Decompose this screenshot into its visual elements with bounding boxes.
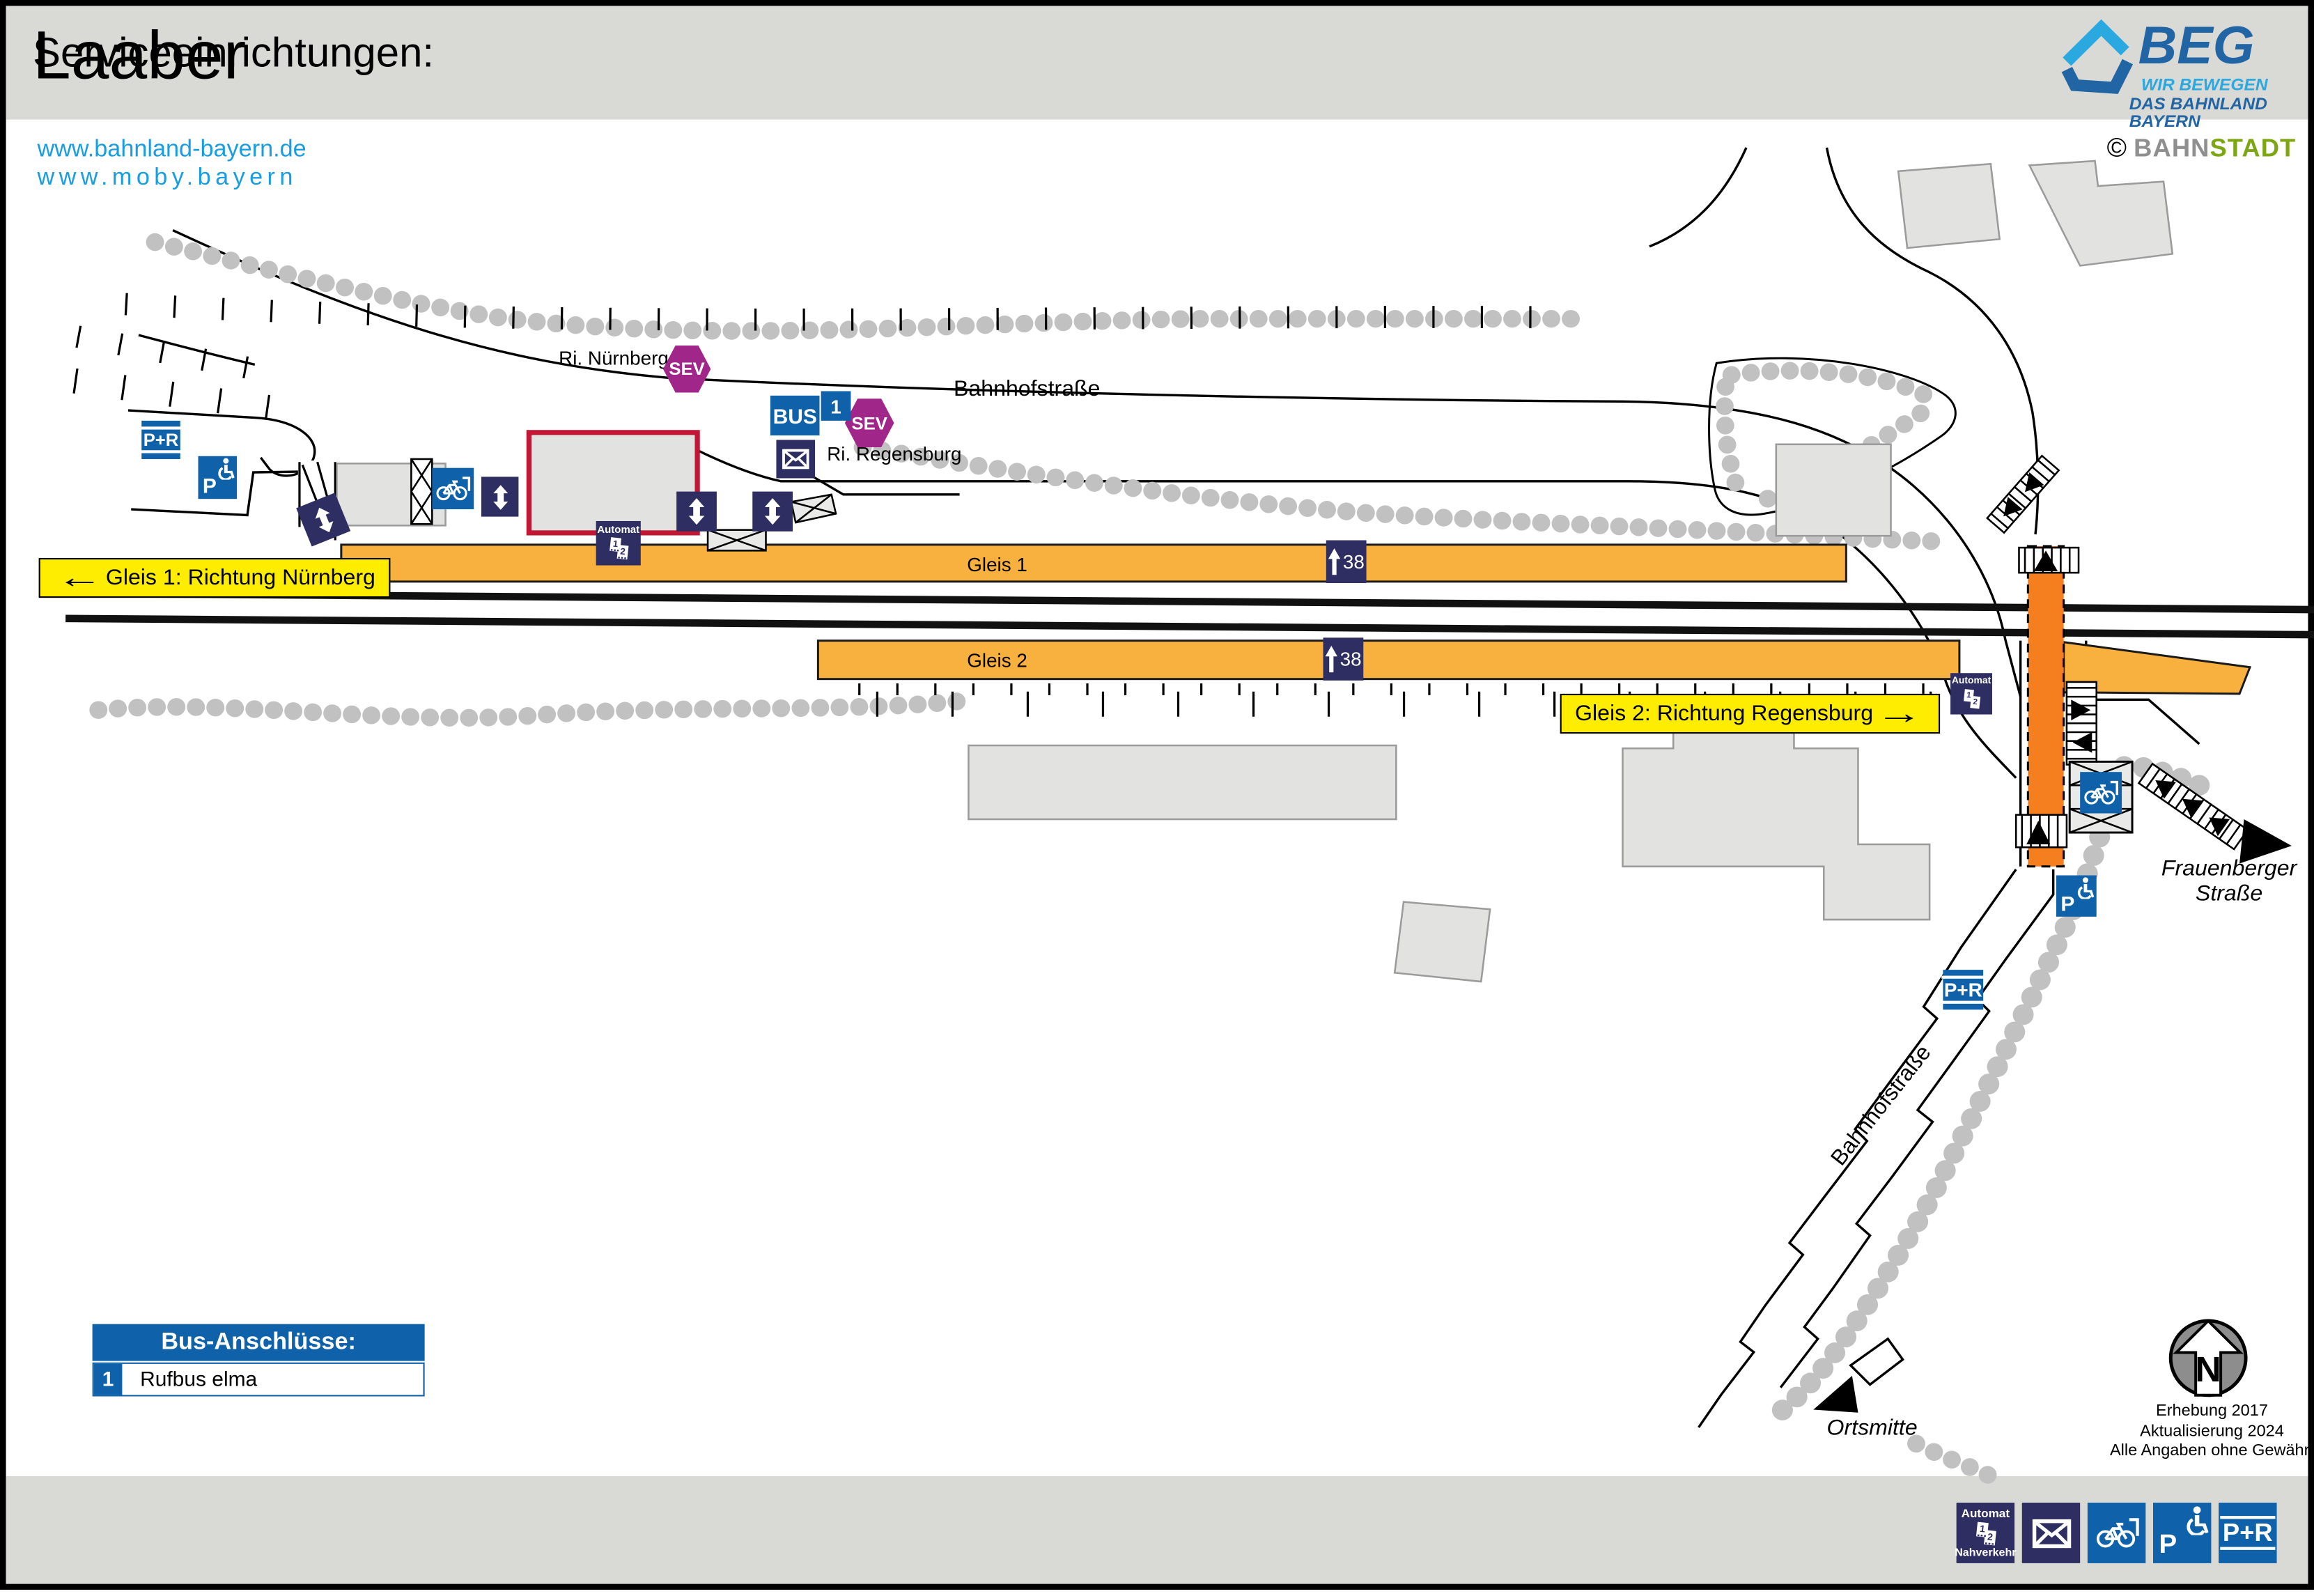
- label-bahnhofstrasse-top: Bahnhofstraße: [954, 376, 1101, 401]
- label-frauenberger-strasse: Frauenberger Straße: [2140, 856, 2314, 906]
- tickets-glyph: 1 2: [606, 536, 631, 561]
- bicycle-icon: [2095, 1516, 2139, 1550]
- platform-access-icon: [676, 492, 717, 532]
- railway-tracks: [65, 594, 2314, 635]
- service-accessible-parking-icon: P: [2153, 1503, 2211, 1563]
- building-small-rotated: [1395, 902, 1490, 982]
- mailbox-icon: [776, 440, 815, 478]
- ticket-machine-platform1-icon: Automat 1 2: [596, 521, 641, 566]
- bicycle-icon: [435, 475, 471, 502]
- building-mid-right: [1776, 444, 1891, 536]
- label-ri-regensburg: Ri. Regensburg: [827, 443, 961, 465]
- svg-text:2: 2: [619, 546, 626, 557]
- wheelchair-icon: [2180, 1505, 2210, 1535]
- service-icons-row: Automat 1 2 Nahverkehr P: [1957, 1503, 2277, 1563]
- platform-access-icon: [752, 492, 793, 532]
- wheelchair-icon: [213, 458, 235, 480]
- service-mailbox-icon: [2022, 1503, 2080, 1563]
- bus-connections-box: Bus-Anschlüsse: 1 Rufbus elma: [93, 1324, 425, 1397]
- bicycle-icon: [2083, 780, 2118, 806]
- up-arrow-icon: [1325, 644, 1338, 674]
- platform1-height-marker: 38: [1326, 541, 1367, 583]
- platform-access-icon: [481, 477, 518, 516]
- platform2-height-marker: 38: [1323, 637, 1364, 680]
- svg-text:2: 2: [1972, 697, 1978, 706]
- wheelchair-icon: [2072, 877, 2095, 899]
- accessible-parking-east-icon: P: [2056, 876, 2097, 917]
- label-gleis2: Gleis 2: [967, 649, 1027, 672]
- label-ri-nuernberg: Ri. Nürnberg: [559, 347, 669, 369]
- bus-route-number: 1: [94, 1364, 123, 1395]
- park-and-ride-west-icon: P+R: [141, 421, 180, 459]
- park-and-ride-east-icon: P+R: [1943, 970, 1983, 1009]
- bus-line-1-icon: 1: [821, 392, 851, 421]
- track-2: [65, 619, 2314, 635]
- building-topright-1: [1898, 164, 1999, 248]
- station-plan-page: Laaber Serviceeinrichtungen: www.bahnlan…: [0, 0, 2314, 1590]
- bus-connections-title: Bus-Anschlüsse:: [93, 1324, 425, 1361]
- north-arrow: N: [2166, 1317, 2250, 1407]
- service-ticket-machine-icon: Automat 1 2 Nahverkehr: [1957, 1503, 2014, 1563]
- banner-gleis1-direction: ← Gleis 1: Richtung Nürnberg: [39, 558, 391, 598]
- label-ortsmitte: Ortsmitte: [1827, 1416, 1918, 1441]
- bus-route-name: Rufbus elma: [122, 1364, 257, 1395]
- track-1: [65, 594, 2314, 610]
- survey-notes: Erhebung 2017 Aktualisierung 2024 Alle A…: [2104, 1402, 2314, 1462]
- copyright-sign: ©: [2107, 133, 2127, 162]
- bike-parking-west-icon: [432, 468, 474, 509]
- label-gleis1: Gleis 1: [967, 554, 1027, 576]
- service-bike-parking-icon: [2088, 1503, 2145, 1563]
- bike-parking-east-icon: [2080, 772, 2122, 813]
- building-large-center: [968, 745, 1396, 819]
- bus-route-row: 1 Rufbus elma: [93, 1363, 425, 1397]
- bus-stop-icon: BUS: [770, 396, 820, 435]
- svg-text:N: N: [2195, 1349, 2221, 1389]
- building-topright-2: [2029, 161, 2172, 265]
- station-building: [529, 433, 697, 533]
- platform-1: [341, 545, 1846, 582]
- up-arrow-icon: [1328, 546, 1342, 577]
- ticket-machine-platform2-icon: Automat 1 2: [1950, 673, 1992, 714]
- north-arrow-icon: N: [2166, 1317, 2250, 1400]
- banner-gleis2-direction: Gleis 2: Richtung Regensburg →: [1560, 694, 1941, 734]
- accessible-parking-west-icon: P: [199, 456, 238, 499]
- svg-text:1: 1: [612, 539, 618, 550]
- bahnstadt-credit: © BAHNSTADT: [2107, 133, 2297, 164]
- service-park-and-ride-icon: P+R: [2219, 1503, 2276, 1563]
